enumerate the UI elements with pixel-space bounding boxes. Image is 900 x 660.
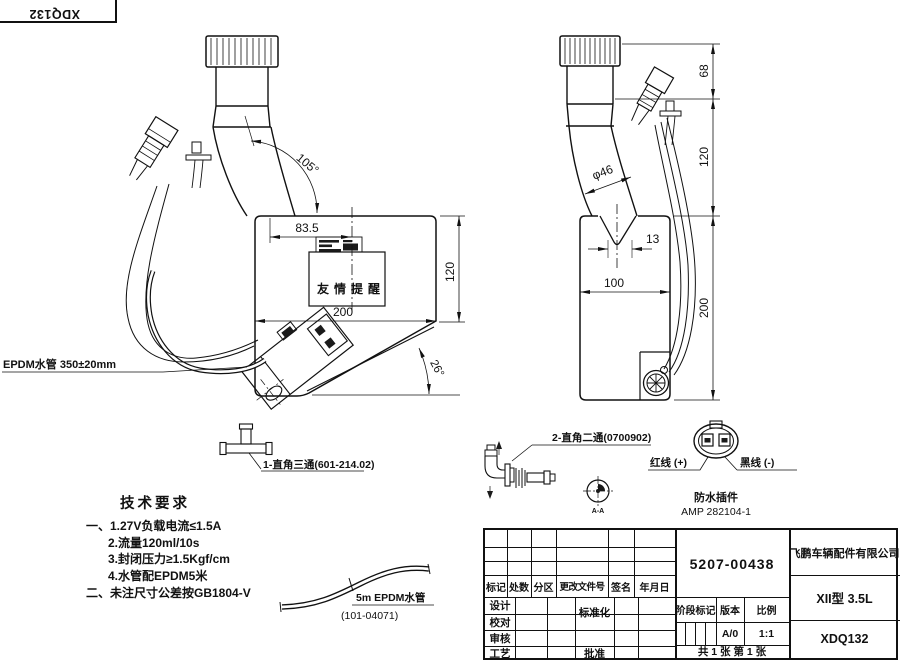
dim-100: 100 — [604, 276, 624, 290]
bleed-fitting-front — [186, 142, 211, 188]
hose5m-label: 5m EPDM水管 — [356, 591, 426, 604]
connector-name: 防水插件 — [694, 490, 738, 504]
drawing-number: 5207-00438 — [675, 530, 789, 597]
dim-105deg: 105° — [294, 151, 322, 178]
reminder-text: 友情提醒 — [316, 281, 385, 296]
tech-item: 一、1.27V负载电流≤1.5A — [86, 517, 221, 534]
connector-plug-side — [625, 67, 673, 128]
tee-label: 1-直角三通(601-214.02) — [263, 458, 374, 471]
rev-header-date: 年月日 — [634, 575, 675, 597]
version-value: A/0 — [716, 622, 744, 645]
scale-header: 比例 — [744, 597, 789, 622]
detail-connector-face: 红线 (+) 黑线 (-) 防水插件 AMP 282104-1 — [648, 421, 797, 518]
title-block: 标记 处数 分区 更改文件号 签名 年月日 设计 校对 审核 工艺 标准化 批准… — [483, 528, 898, 660]
sig-standardization: 标准化 — [575, 597, 614, 630]
side-view — [560, 36, 695, 400]
corner-stamp-text: XDQ132 — [29, 6, 80, 21]
rev-header-docno: 更改文件号 — [556, 575, 608, 597]
connector-model: AMP 282104-1 — [681, 506, 751, 518]
model-name: XII型 3.5L — [789, 575, 900, 620]
rev-header-zone: 分区 — [531, 575, 556, 597]
stage-header: 阶段标记 — [675, 597, 716, 622]
tech-requirements: 技术要求 一、1.27V负载电流≤1.5A 2.流量120ml/10s 3.封闭… — [84, 492, 304, 604]
sig-approve: 批准 — [575, 646, 614, 660]
company-name: 飞鹏车辆配件有限公司 — [789, 530, 900, 575]
dim-200-side: 200 — [697, 298, 711, 318]
sig-check: 校对 — [485, 614, 515, 630]
wire-harness-front — [126, 184, 258, 362]
front-view: 友情提醒 — [2, 36, 436, 414]
sig-audit: 审核 — [485, 630, 515, 646]
rev-header-sign: 签名 — [608, 575, 634, 597]
section-mark: A-A — [592, 508, 604, 515]
connector-plug-front — [122, 117, 178, 185]
elbow-label: 2-直角二通(0700902) — [552, 431, 651, 444]
hose5m-code: (101-04071) — [341, 610, 398, 622]
sig-process: 工艺 — [485, 646, 515, 660]
dimensions: 83.5 105° 120 200 26° φ46 13 100 68 120 — [245, 44, 720, 400]
spec-sticker — [316, 237, 362, 252]
filler-cap-side — [560, 36, 620, 66]
tech-item: 3.封闭压力≥1.5Kgf/cm — [108, 550, 230, 567]
dim-200-front: 200 — [333, 305, 353, 319]
detail-tee-fitting: 1-直角三通(601-214.02) — [220, 424, 374, 471]
rev-header-mark: 标记 — [485, 575, 507, 597]
version-header: 版本 — [716, 597, 744, 622]
dim-120-front: 120 — [443, 262, 457, 282]
red-wire-label: 红线 (+) — [650, 456, 687, 469]
detail-section-view: A-A — [583, 476, 613, 515]
tech-title: 技术要求 — [120, 492, 190, 513]
black-wire-label: 黑线 (-) — [740, 456, 774, 469]
rev-header-count: 处数 — [507, 575, 531, 597]
dim-83-5: 83.5 — [295, 221, 319, 235]
pump-assembly-side — [640, 352, 670, 400]
wire-harness-side — [655, 118, 695, 375]
reminder-plate: 友情提醒 — [309, 252, 385, 306]
dim-13: 13 — [646, 232, 660, 246]
detail-elbow-fitting: 2-直角二通(0700902) — [485, 431, 651, 499]
dim-26deg: 26° — [427, 358, 446, 379]
tech-item: 2.流量120ml/10s — [108, 534, 199, 551]
sig-design: 设计 — [485, 597, 515, 614]
part-number: XDQ132 — [789, 620, 900, 658]
sheet-info: 共 1 张 第 1 张 — [675, 645, 789, 658]
dim-68: 68 — [697, 64, 711, 78]
bleed-fitting-side — [660, 101, 681, 145]
dim-120-side: 120 — [697, 147, 711, 167]
dim-phi46: φ46 — [590, 162, 615, 183]
drawing-sheet: 友情提醒 — [0, 0, 900, 660]
hose-length-label: EPDM水管 350±20mm — [3, 357, 116, 371]
tech-item: 4.水管配EPDM5米 — [108, 567, 207, 584]
filler-neck-side — [566, 66, 637, 216]
corner-stamp: XDQ132 — [0, 0, 117, 23]
filler-cap-front — [206, 36, 278, 67]
scale-value: 1:1 — [744, 622, 789, 645]
tech-item: 二、未注尺寸公差按GB1804-V — [86, 584, 251, 601]
